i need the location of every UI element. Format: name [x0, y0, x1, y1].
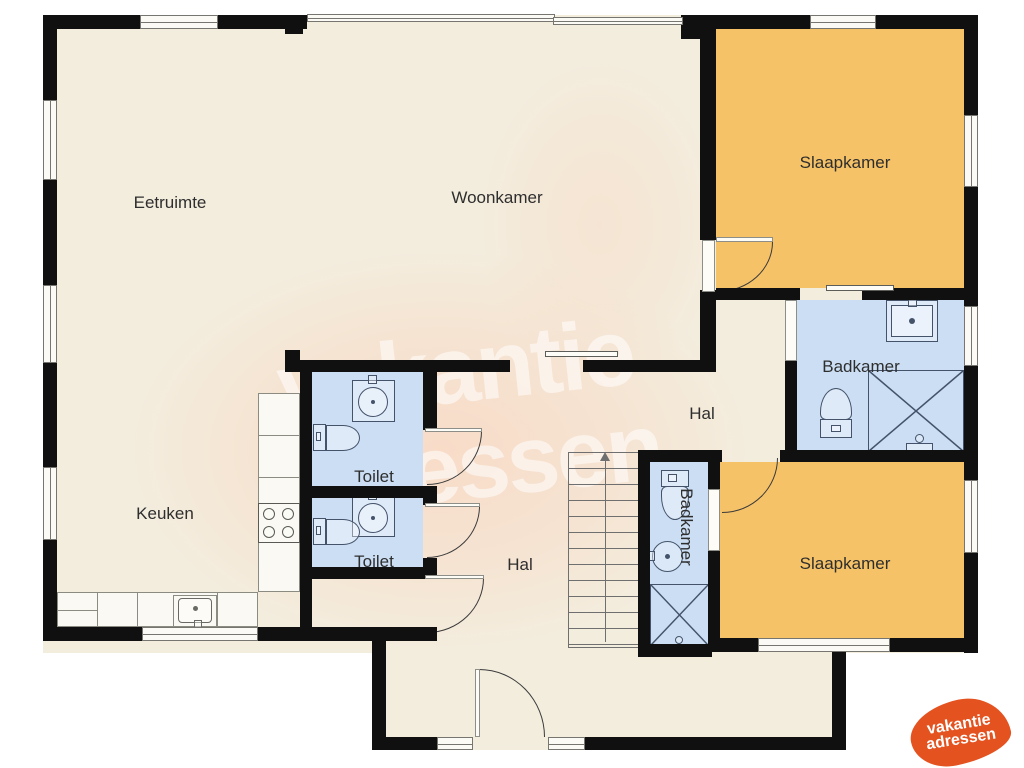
wall-segment — [43, 363, 57, 467]
shower-head — [675, 636, 683, 644]
stove-burner — [282, 526, 294, 538]
kitchen-counter-column — [258, 393, 300, 592]
wall-segment — [964, 15, 978, 115]
wall-segment — [585, 737, 846, 750]
counter-divider — [137, 592, 138, 627]
window — [43, 100, 57, 180]
wall-segment — [423, 558, 437, 575]
room-label-woonkamer: Woonkamer — [451, 188, 542, 208]
room-label-badkamer-ensuite: Badkamer — [676, 488, 696, 565]
sink-drain — [371, 400, 375, 404]
wall-segment — [785, 360, 797, 462]
room-label-slaapkamer-boven: Slaapkamer — [800, 153, 891, 173]
window — [964, 115, 978, 187]
toilet-flush — [316, 432, 321, 441]
toilet-flush — [316, 526, 321, 535]
counter-divider — [97, 592, 98, 627]
door-leaf-badkamer-boven — [785, 300, 797, 361]
front-door-threshold — [473, 737, 548, 750]
room-label-keuken: Keuken — [136, 504, 194, 524]
wall-segment — [43, 180, 57, 285]
wall-segment — [700, 15, 716, 240]
toilet-flush — [831, 425, 841, 432]
window — [140, 15, 218, 29]
sink-faucet — [368, 375, 377, 384]
wall-segment — [43, 15, 57, 100]
wall-segment — [423, 372, 437, 430]
window — [437, 737, 473, 750]
wall-segment — [708, 551, 720, 650]
window-glazing — [307, 14, 555, 22]
wall-segment — [423, 633, 437, 641]
window — [964, 480, 978, 553]
wall-segment — [712, 15, 810, 29]
window — [758, 638, 890, 652]
wall-segment — [300, 486, 437, 498]
floorplan: vakantie adressen — [0, 0, 1024, 768]
room-label-toilet-2: Toilet — [354, 552, 394, 572]
wall-segment — [700, 290, 716, 372]
stairs-up-arrow — [600, 452, 610, 461]
sliding-door-woonkamer — [545, 351, 618, 357]
toilet-bowl — [326, 425, 360, 451]
stove-burner — [263, 526, 275, 538]
sliding-door-badkamer-boven — [826, 285, 894, 291]
room-label-badkamer-boven: Badkamer — [822, 357, 899, 377]
room-label-slaapkamer-beneden: Slaapkamer — [800, 554, 891, 574]
wall-segment — [258, 627, 437, 641]
sink-drain — [909, 318, 915, 324]
door-leaf — [425, 575, 484, 579]
window — [964, 306, 978, 366]
window — [548, 737, 585, 750]
room-label-hal-beneden: Hal — [507, 555, 533, 575]
wall-segment — [964, 366, 978, 480]
door-leaf — [425, 428, 482, 432]
wall-segment — [583, 360, 716, 372]
room-label-toilet-1: Toilet — [354, 467, 394, 487]
wall-segment — [876, 15, 978, 29]
toilet-bowl — [326, 519, 360, 545]
window-glazing — [553, 17, 683, 25]
door-leaf — [716, 237, 773, 242]
wall-segment — [285, 360, 510, 372]
wall-segment — [285, 25, 303, 34]
stove-burner — [263, 508, 275, 520]
shower-head — [915, 434, 924, 443]
toilet-flush — [668, 474, 677, 482]
kitchen-sink-drain — [193, 606, 198, 611]
wall-segment — [386, 737, 437, 750]
wall-segment — [638, 452, 650, 657]
wall-segment — [43, 15, 140, 29]
wall-segment — [890, 638, 978, 652]
room-label-hal-boven: Hal — [689, 404, 715, 424]
counter-divider — [258, 435, 300, 436]
wall-segment — [832, 650, 846, 750]
window — [43, 467, 57, 540]
door-gap-slaapkamer-boven — [702, 240, 715, 292]
stove-burner — [282, 508, 294, 520]
wall-segment — [372, 641, 386, 750]
counter-divider — [258, 477, 300, 478]
counter-divider — [217, 592, 218, 627]
wall-segment — [780, 450, 978, 462]
wall-segment — [43, 540, 57, 641]
wall-segment — [43, 627, 142, 641]
counter-divider — [57, 610, 97, 611]
wall-segment — [716, 288, 800, 300]
wall-segment — [300, 360, 312, 641]
door-leaf-badkamer-ensuite — [708, 489, 720, 551]
floor-entrance-extension — [386, 641, 846, 750]
wall-segment — [708, 452, 720, 489]
sink-drain — [371, 516, 375, 520]
stairs-guide-line — [605, 461, 606, 642]
room-label-eetruimte: Eetruimte — [134, 193, 207, 213]
window — [810, 15, 876, 29]
door-leaf — [425, 503, 480, 507]
window — [142, 627, 258, 641]
sink-drain — [665, 554, 670, 559]
door-leaf-front — [475, 669, 480, 737]
window — [43, 285, 57, 363]
